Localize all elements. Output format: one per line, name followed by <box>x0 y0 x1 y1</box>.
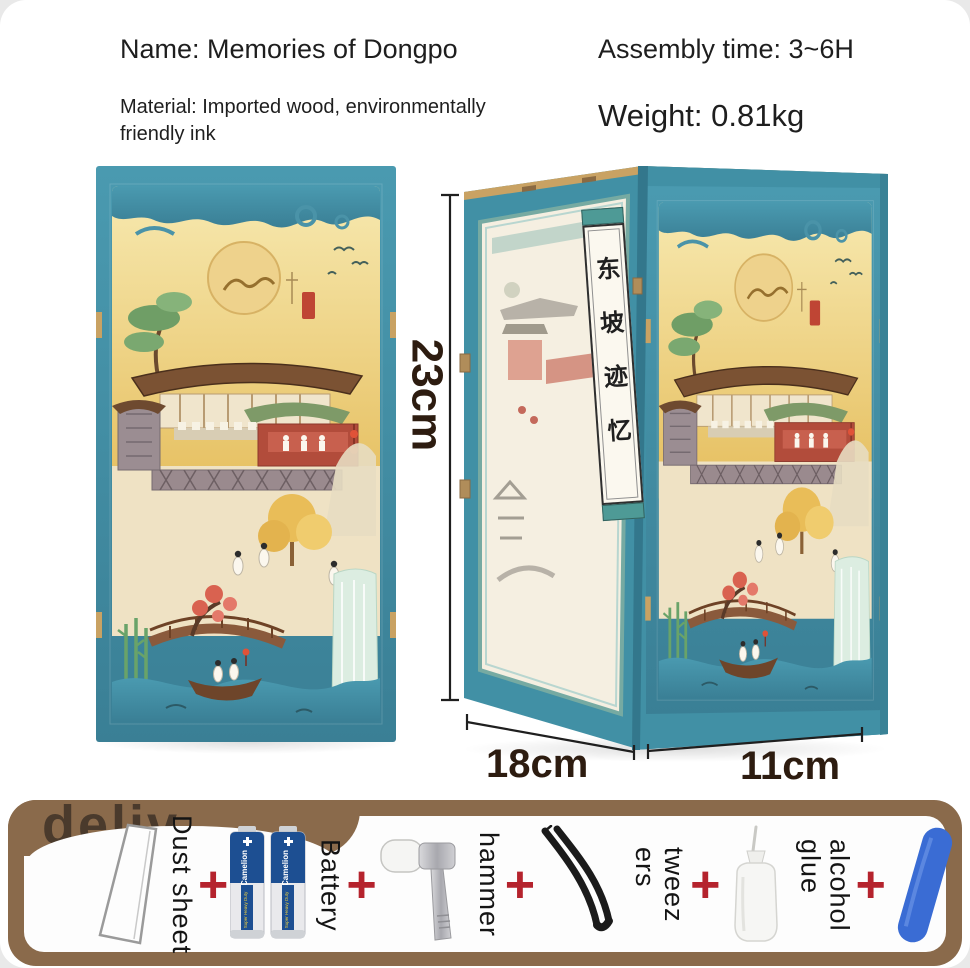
scroll-bottom-cap <box>602 502 645 521</box>
plus-separator: + <box>503 859 537 911</box>
hammer-label: hammer <box>474 832 503 937</box>
tweezers-icon <box>537 825 621 945</box>
plus-separator: + <box>196 859 230 911</box>
product-front-view <box>96 166 396 742</box>
assembly-time-label: Assembly time: 3~6H <box>598 34 854 65</box>
accessory-scrub-stick: scrub stick <box>888 816 962 955</box>
material-label: Material: Imported wood, environmentally… <box>120 94 500 148</box>
svg-text:Super Heavy Duty: Super Heavy Duty <box>284 891 289 928</box>
battery-icon: Camelion Super Heavy Duty Camelion Super… <box>230 826 306 944</box>
alcohol-glue-label: alcohol glue <box>796 839 854 932</box>
hammer-icon <box>379 826 465 944</box>
dust-sheet-label: Dust sheet <box>167 815 196 954</box>
height-dimension-label: 23cm <box>401 339 451 452</box>
tweezers-label: tweez ers <box>630 847 688 923</box>
accessory-battery: Camelion Super Heavy Duty Camelion Super… <box>230 826 344 944</box>
accessories-bar: deliv Dust sheet + Came <box>8 800 962 966</box>
battery-label: Battery <box>315 839 344 932</box>
plus-separator: + <box>854 859 888 911</box>
svg-text:Camelion: Camelion <box>240 850 249 886</box>
accessory-dust-sheet: Dust sheet <box>94 815 196 954</box>
weight-label: Weight: 0.81kg <box>598 98 804 134</box>
accessory-tweezers: tweez ers <box>537 825 688 945</box>
product-name-label: Name: Memories of Dongpo <box>120 34 458 65</box>
accessories-list: Dust sheet + Camelion Super Heavy Duty <box>94 814 944 956</box>
dimension-lines <box>395 150 905 810</box>
plus-separator: + <box>344 859 378 911</box>
product-detail-page: Name: Memories of Dongpo Assembly time: … <box>0 0 970 968</box>
glue-bottle-icon <box>723 825 787 945</box>
svg-text:Super Heavy Duty: Super Heavy Duty <box>243 891 248 928</box>
book-nook-front-illustration <box>96 166 396 742</box>
width-dimension-label: 18cm <box>486 742 588 787</box>
plus-separator: + <box>688 859 722 911</box>
dust-sheet-icon <box>94 823 158 947</box>
accessory-alcohol-glue: alcohol glue <box>723 825 854 945</box>
svg-text:Camelion: Camelion <box>281 850 290 886</box>
accessory-hammer: hammer <box>379 826 503 944</box>
scrub-stick-icon <box>888 824 962 946</box>
depth-dimension-label: 11cm <box>740 744 840 789</box>
